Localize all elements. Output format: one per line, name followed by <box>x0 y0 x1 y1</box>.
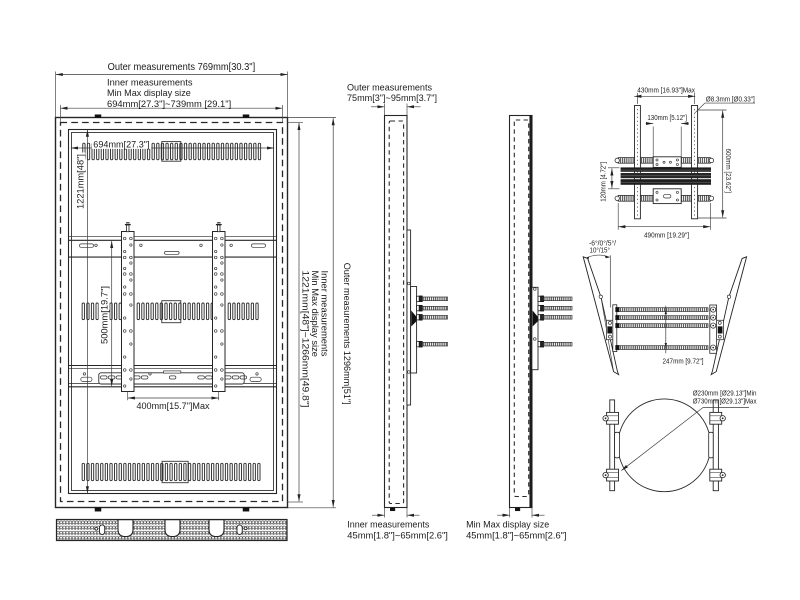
svg-text:Outer measurements: Outer measurements <box>347 82 432 92</box>
svg-text:45mm[1.8"]~65mm[2.6"]: 45mm[1.8"]~65mm[2.6"] <box>466 531 567 541</box>
svg-text:Ø730mm [Ø29.13"]Max: Ø730mm [Ø29.13"]Max <box>693 399 757 406</box>
svg-text:400mm[15.7"]Max: 400mm[15.7"]Max <box>137 401 210 412</box>
svg-text:Ø8.3mm [Ø0.33"]: Ø8.3mm [Ø0.33"] <box>706 96 755 103</box>
svg-text:130mm [5.12"]: 130mm [5.12"] <box>647 115 687 122</box>
svg-text:694mm[27.3"]: 694mm[27.3"] <box>93 140 149 151</box>
svg-text:694mm[27.3"]~739mm [29.1"]: 694mm[27.3"]~739mm [29.1"] <box>107 99 231 110</box>
svg-text:247mm [9.72"]: 247mm [9.72"] <box>663 356 704 365</box>
svg-text:Min Max display size: Min Max display size <box>466 519 549 529</box>
svg-text:600mm [23.62"]: 600mm [23.62"] <box>724 149 731 194</box>
svg-text:1221mm[48"]: 1221mm[48"] <box>75 154 86 209</box>
svg-text:Ø230mm [Ø29.13"]Min: Ø230mm [Ø29.13"]Min <box>693 390 757 397</box>
svg-text:430mm [16.93"]Max: 430mm [16.93"]Max <box>637 88 695 95</box>
svg-text:Inner measurements: Inner measurements <box>347 519 429 529</box>
svg-text:10°/15°: 10°/15° <box>590 246 611 255</box>
svg-text:500mm[19.7"]: 500mm[19.7"] <box>100 286 111 344</box>
svg-text:Outer measurements 1296mm[51"]: Outer measurements 1296mm[51"] <box>342 263 353 405</box>
svg-text:120mm [4.72"]: 120mm [4.72"] <box>600 162 607 202</box>
svg-text:490mm [19.29"]: 490mm [19.29"] <box>644 233 689 240</box>
svg-text:Min Max display size: Min Max display size <box>107 88 191 99</box>
svg-text:Outer measurements 769mm[30.3": Outer measurements 769mm[30.3"] <box>108 62 256 73</box>
svg-text:45mm[1.8"]~65mm[2.6"]: 45mm[1.8"]~65mm[2.6"] <box>347 531 448 541</box>
svg-text:Inner measurements: Inner measurements <box>107 78 193 89</box>
svg-text:Inner measurementsMin Max disp: Inner measurementsMin Max display size12… <box>300 271 330 408</box>
svg-text:75mm[3"]~95mm[3.7"]: 75mm[3"]~95mm[3.7"] <box>347 93 437 103</box>
